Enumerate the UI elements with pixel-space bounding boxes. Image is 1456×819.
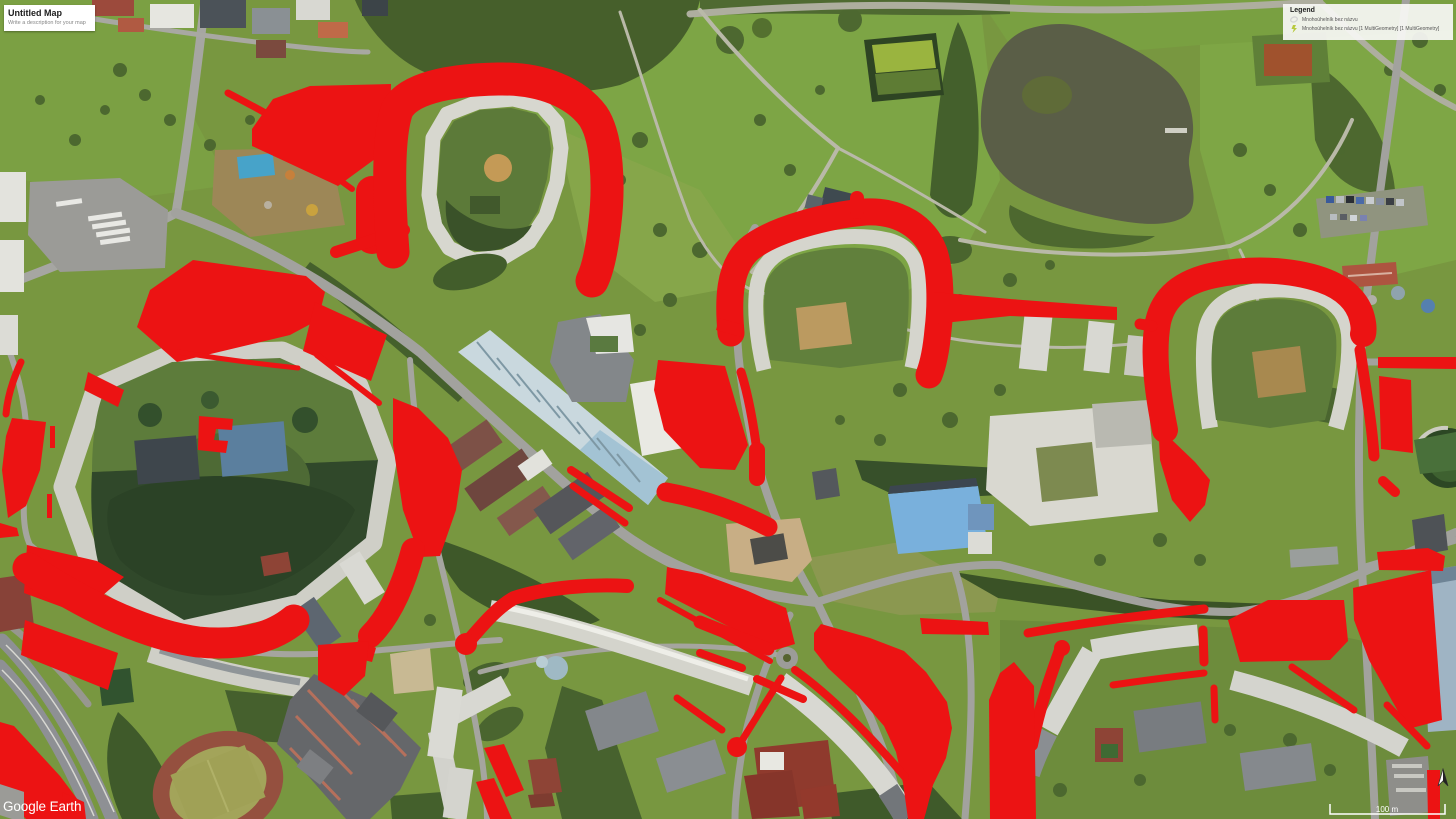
svg-text:100 m: 100 m	[1376, 805, 1399, 814]
